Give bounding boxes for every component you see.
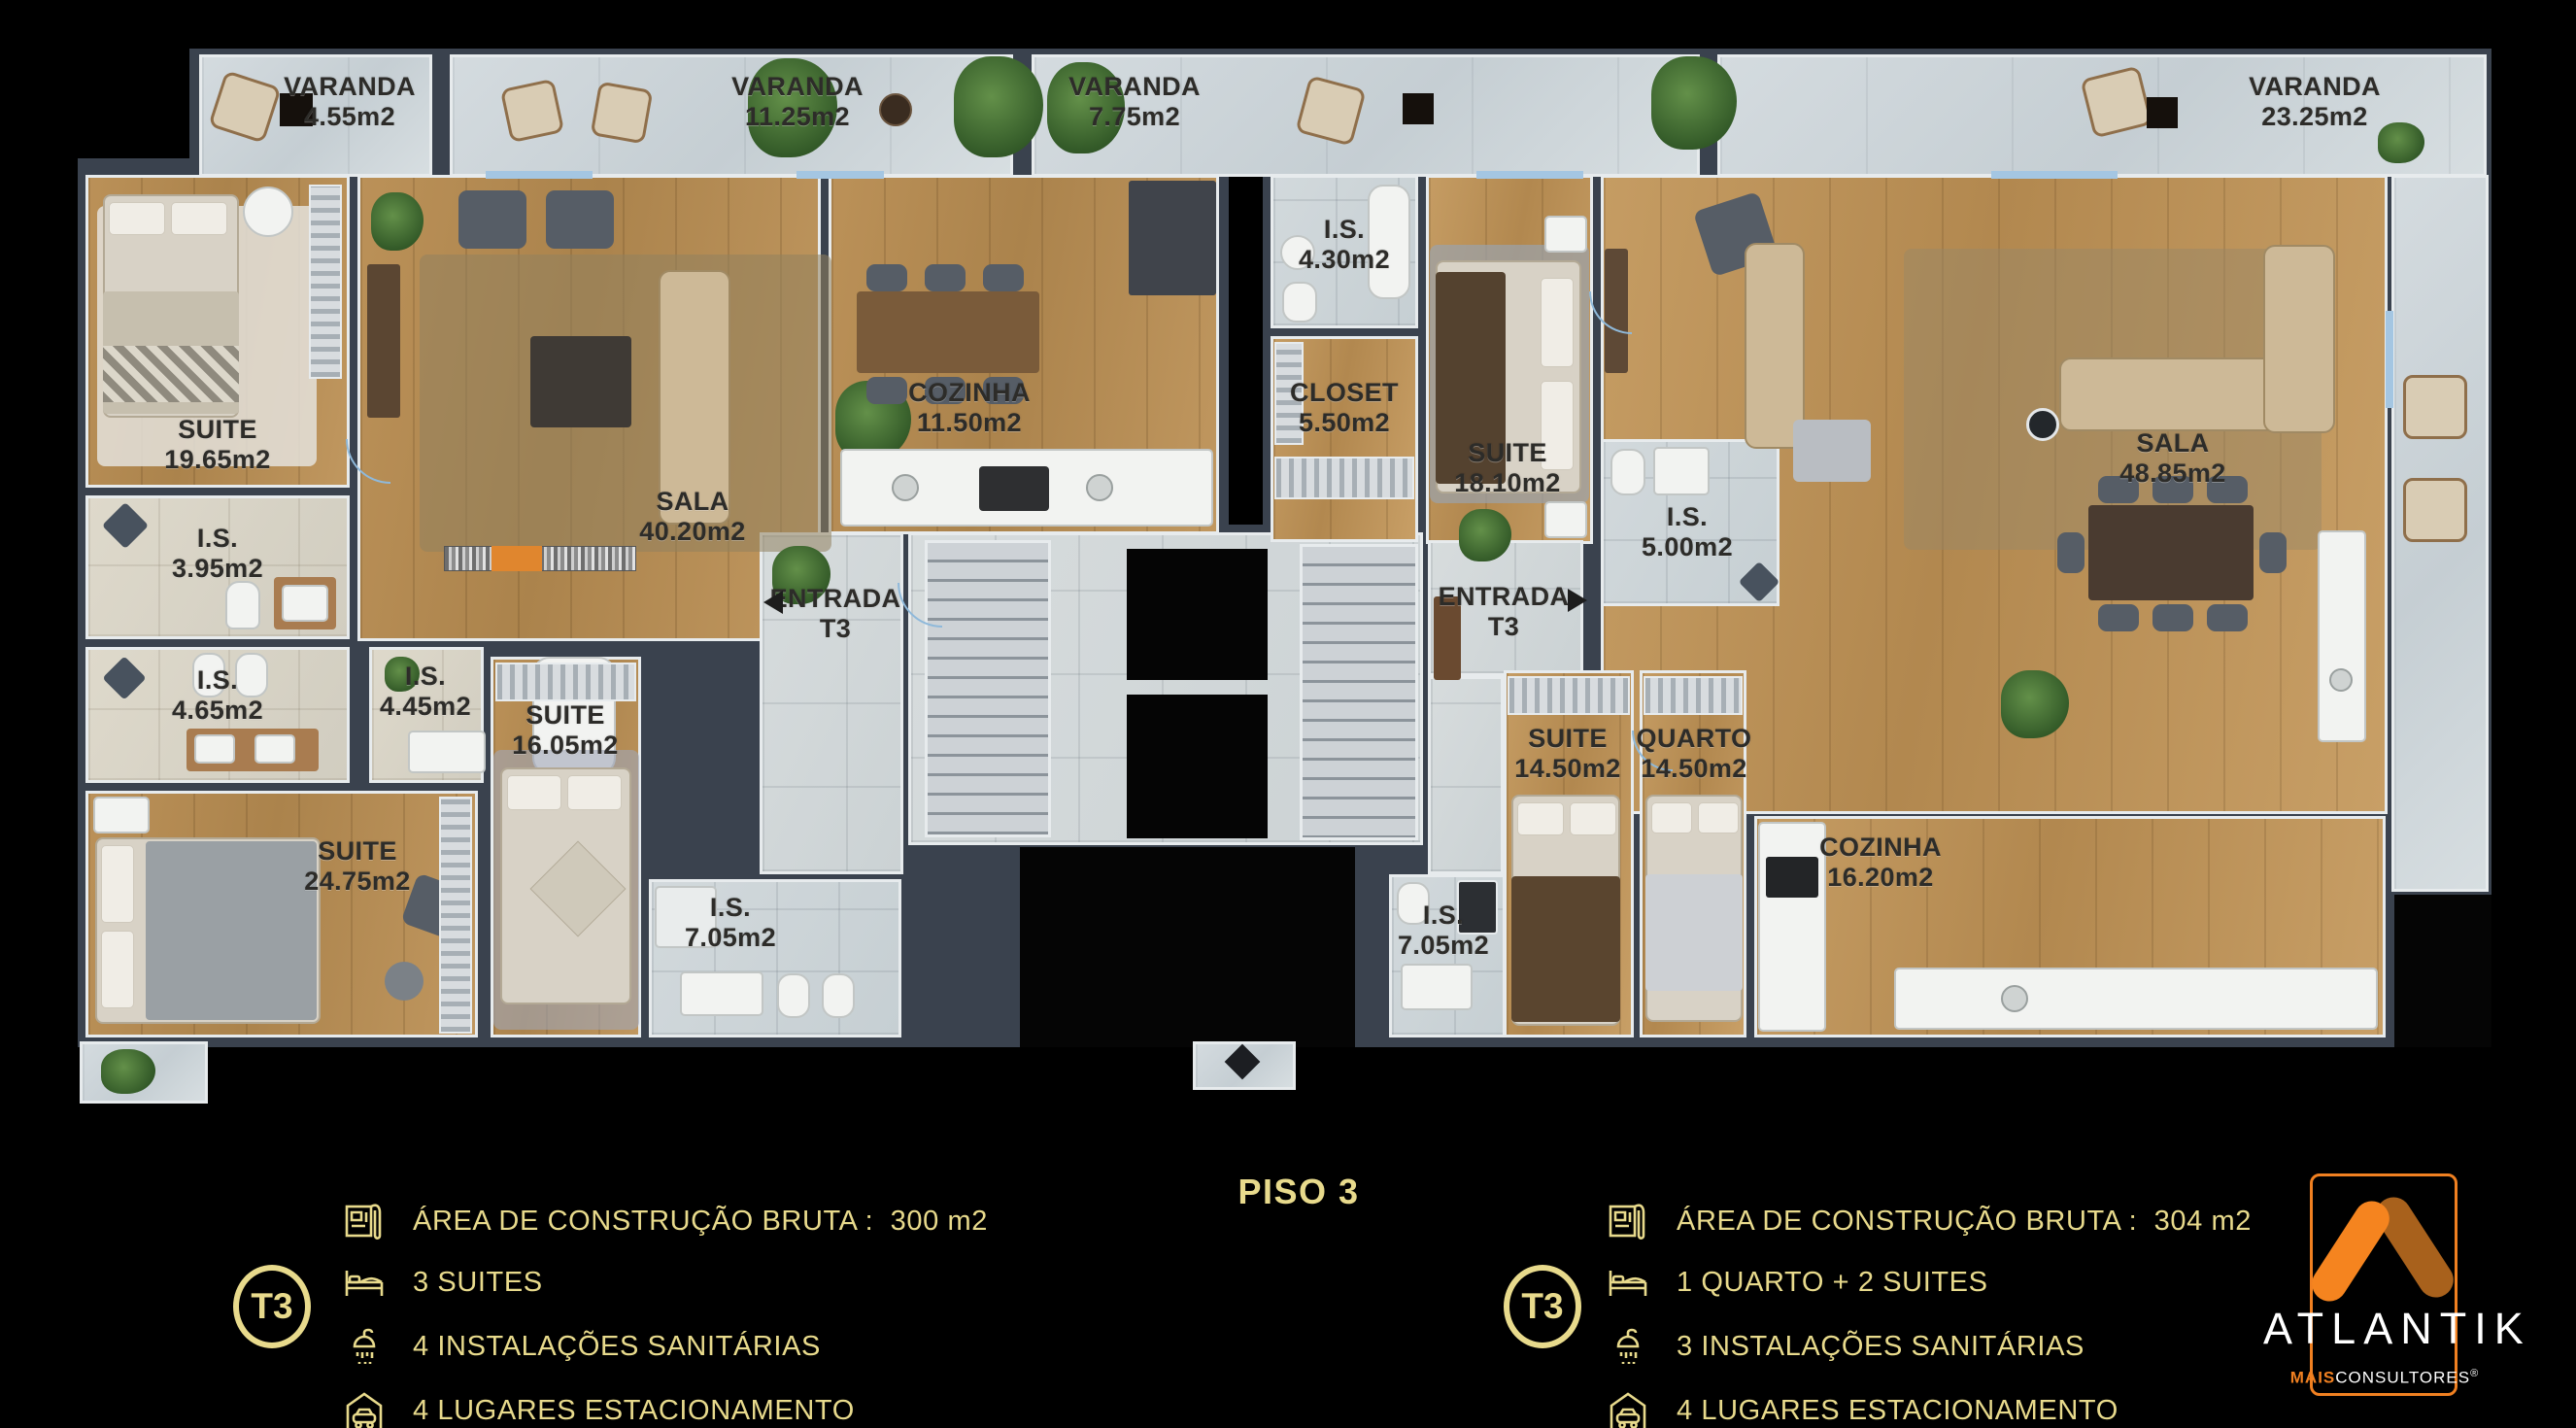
sink [194, 734, 235, 764]
room-name: SALA [2119, 428, 2225, 459]
room-label: ENTRADA T3 [770, 584, 901, 644]
lounge-chair [2403, 375, 2467, 439]
floorplan-page: VARANDA 4.55m2 VARANDA 11.25m2 VARANDA 7… [0, 0, 2576, 1428]
room-label: SUITE 19.65m2 [164, 415, 270, 475]
balcony-door [1991, 171, 2118, 179]
stairs-left [925, 540, 1051, 837]
balcony-label: VARANDA 11.25m2 [731, 72, 864, 132]
wardrobe [1508, 676, 1630, 715]
balcony-door [797, 171, 884, 179]
balcony-label: VARANDA 7.75m2 [1068, 72, 1201, 132]
lounge-chair [500, 79, 564, 143]
shower-icon [341, 1323, 388, 1370]
room-label: SUITE 18.10m2 [1454, 438, 1560, 498]
room-label: I.S. 4.30m2 [1299, 215, 1390, 275]
sofa-chaise [2263, 245, 2335, 433]
armchair [546, 190, 614, 249]
bed-icon [341, 1259, 388, 1306]
floor-title: PISO 3 [1237, 1172, 1359, 1212]
bed-pillow [567, 775, 622, 810]
sink [282, 585, 328, 622]
room-name: SUITE [1454, 438, 1560, 468]
elevator-shaft [1127, 549, 1268, 680]
room-area: 4.65m2 [172, 696, 263, 726]
shower-icon [1605, 1323, 1651, 1370]
car-garage-icon [341, 1387, 388, 1428]
bed-pillow [1698, 802, 1739, 833]
room-area: 7.05m2 [685, 923, 776, 953]
oven [1766, 857, 1818, 898]
room-area: 14.50m2 [1514, 754, 1620, 784]
entrada-arrow-icon [1568, 589, 1587, 612]
legend-bathrooms-text: 4 INSTALAÇÕES SANITÁRIAS [413, 1331, 821, 1363]
room-label: I.S. 4.45m2 [380, 662, 471, 722]
legend-parking-text: 4 LUGARES ESTACIONAMENTO [413, 1395, 855, 1427]
room-area: 16.05m2 [512, 731, 618, 761]
planter-box [1403, 93, 1434, 124]
bed-pillow [507, 775, 561, 810]
lounge-chair [591, 82, 654, 145]
room-name: SUITE [164, 415, 270, 445]
balcony-label: VARANDA 4.55m2 [284, 72, 416, 132]
bed-pillow [109, 202, 165, 235]
room-name: I.S. [172, 524, 263, 554]
kitchen-sink [892, 474, 919, 501]
kitchen-peninsula [2318, 530, 2366, 742]
bed-pillow [101, 931, 134, 1008]
stairs-right [1300, 544, 1418, 840]
legend-bedrooms-text: 3 SUITES [413, 1267, 543, 1299]
kitchen-sink [2329, 668, 2353, 692]
room-area: 24.75m2 [304, 867, 410, 897]
unit-badge-left: T3 [233, 1265, 311, 1348]
wardrobe [439, 797, 472, 1034]
dining-chair [925, 264, 966, 291]
bed-blanket [1645, 874, 1743, 991]
blueprint-icon [1605, 1198, 1651, 1244]
room-area: 5.00m2 [1642, 532, 1733, 562]
room-name: VARANDA [2249, 72, 2381, 102]
legend-row-parking-left: 4 LUGARES ESTACIONAMENTO [341, 1387, 855, 1428]
bidet [822, 973, 855, 1018]
legend-row-bedrooms-right: 1 QUARTO + 2 SUITES [1605, 1259, 1988, 1306]
bed-throw [103, 346, 239, 402]
room-label: CLOSET 5.50m2 [1290, 378, 1399, 438]
wardrobe [1274, 457, 1414, 499]
room-name: COZINHA [1819, 833, 1942, 863]
room-name: I.S. [172, 665, 263, 696]
coffee-table [530, 336, 631, 427]
building-gap-void [1020, 847, 1355, 1047]
room-area: 14.50m2 [1637, 754, 1752, 784]
registered-mark: ® [2470, 1368, 2479, 1379]
room-name: ENTRADA [1439, 582, 1570, 612]
void-corner [2394, 895, 2491, 1047]
room-label: SALA 48.85m2 [2119, 428, 2225, 489]
lounge-chair [2403, 478, 2467, 542]
room-name: I.S. [1299, 215, 1390, 245]
nightstand [1544, 501, 1587, 538]
legend-area-text: ÁREA DE CONSTRUÇÃO BRUTA : 304 m2 [1677, 1206, 2252, 1238]
tagline-bold: MAIS [2290, 1369, 2336, 1387]
room-label: SALA 40.20m2 [639, 487, 745, 547]
room-area: 48.85m2 [2119, 459, 2225, 489]
bed-pillow [1541, 278, 1574, 367]
bed-pillow [101, 845, 134, 923]
legend-row-bedrooms-left: 3 SUITES [341, 1259, 543, 1306]
tv-console [367, 264, 400, 418]
legend-bathrooms-text: 3 INSTALAÇÕES SANITÁRIAS [1677, 1331, 2085, 1363]
unit-type: T3 [251, 1286, 292, 1327]
car-garage-icon [1605, 1387, 1651, 1428]
room-area: 40.20m2 [639, 517, 745, 547]
pouf [385, 962, 424, 1001]
room-area: 23.25m2 [2249, 102, 2381, 132]
room-label: COZINHA 16.20m2 [1819, 833, 1942, 893]
room-name: QUARTO [1637, 724, 1752, 754]
room-area: 4.55m2 [284, 102, 416, 132]
room-label: SUITE 24.75m2 [304, 836, 410, 897]
room-area: 16.20m2 [1819, 863, 1942, 893]
unit-badge-right: T3 [1504, 1265, 1581, 1348]
dining-table [857, 291, 1039, 373]
room-name: I.S. [1398, 901, 1489, 931]
dining-chair [866, 377, 907, 404]
armchair [458, 190, 526, 249]
room-area: 11.50m2 [908, 408, 1031, 438]
room-area: 3.95m2 [172, 554, 263, 584]
balcony-table [879, 93, 912, 126]
dining-chair [2098, 604, 2139, 631]
room-label: I.S. 4.65m2 [172, 665, 263, 726]
room-name: I.S. [685, 893, 776, 923]
room-label: I.S. 7.05m2 [685, 893, 776, 953]
room-name: ENTRADA [770, 584, 901, 614]
room-name: VARANDA [284, 72, 416, 102]
vanity [1401, 964, 1473, 1010]
kitchen-sink [2001, 985, 2028, 1012]
room-label: SUITE 16.05m2 [512, 700, 618, 761]
room-area: 7.05m2 [1398, 931, 1489, 961]
legend-bedrooms-text: 1 QUARTO + 2 SUITES [1677, 1267, 1988, 1299]
cooktop [979, 466, 1049, 511]
vanity [408, 731, 486, 773]
blueprint-icon [341, 1198, 388, 1244]
kitchen-cabinet [1129, 181, 1216, 295]
legend-area-label: ÁREA DE CONSTRUÇÃO BRUTA : [1677, 1206, 2137, 1237]
wardrobe [309, 185, 342, 379]
room-area: 7.75m2 [1068, 102, 1201, 132]
side-table [2026, 408, 2059, 441]
room-area: 11.25m2 [731, 102, 864, 132]
room-name: I.S. [380, 662, 471, 692]
dining-chair [2259, 532, 2287, 573]
atlantik-tagline: MAISCONSULTORES® [2263, 1368, 2506, 1388]
room-label: ENTRADA T3 [1439, 582, 1570, 642]
atlantik-brand-text: ATLANTIK [2263, 1304, 2506, 1354]
room-label: COZINHA 11.50m2 [908, 378, 1031, 438]
legend-parking-text: 4 LUGARES ESTACIONAMENTO [1677, 1395, 2118, 1427]
wardrobe [495, 663, 636, 701]
dining-chair [2152, 604, 2193, 631]
ottoman [1793, 420, 1871, 482]
room-name: CLOSET [1290, 378, 1399, 408]
toilet [777, 973, 810, 1018]
bed-icon [1605, 1259, 1651, 1306]
dining-chair [866, 264, 907, 291]
kitchen-counter [1894, 968, 2378, 1030]
room-area: T3 [770, 614, 901, 644]
kitchen-appliance-column [1758, 822, 1826, 1032]
room-name: SUITE [1514, 724, 1620, 754]
room-area: T3 [1439, 612, 1570, 642]
bed-pillow [171, 202, 227, 235]
legend-area-value: 300 m2 [891, 1206, 988, 1237]
room-name: SUITE [512, 700, 618, 731]
legend-row-area-left: ÁREA DE CONSTRUÇÃO BRUTA : 300 m2 [341, 1198, 988, 1244]
room-label: I.S. 3.95m2 [172, 524, 263, 584]
dining-chair [2057, 532, 2085, 573]
entrada-arrow-icon [763, 591, 783, 614]
room-name: SUITE [304, 836, 410, 867]
legend-row-area-right: ÁREA DE CONSTRUÇÃO BRUTA : 304 m2 [1605, 1198, 2252, 1244]
room-area: 4.30m2 [1299, 245, 1390, 275]
unit-type: T3 [1521, 1286, 1563, 1327]
room-area: 18.10m2 [1454, 468, 1560, 498]
kitchen-sink [1086, 474, 1113, 501]
ottoman [243, 187, 293, 237]
room-entrada-right-corridor [1428, 676, 1504, 874]
legend-row-bathrooms-left: 4 INSTALAÇÕES SANITÁRIAS [341, 1323, 821, 1370]
sofa [1745, 243, 1805, 449]
room-name: COZINHA [908, 378, 1031, 408]
tagline-rest: CONSULTORES [2335, 1369, 2470, 1387]
bed-pillow [1570, 802, 1616, 835]
dining-chair [2207, 604, 2248, 631]
bed-blanket [1511, 876, 1620, 1022]
bed-pillow [1651, 802, 1692, 833]
toilet [225, 581, 260, 629]
balcony-label: VARANDA 23.25m2 [2249, 72, 2381, 132]
balcony-door [2386, 311, 2393, 408]
legend-area-text: ÁREA DE CONSTRUÇÃO BRUTA : 300 m2 [413, 1206, 988, 1238]
legend-area-label: ÁREA DE CONSTRUÇÃO BRUTA : [413, 1206, 873, 1237]
sink [254, 734, 295, 764]
elevator-shaft-2 [1127, 695, 1268, 838]
room-area: 4.45m2 [380, 692, 471, 722]
room-name: VARANDA [1068, 72, 1201, 102]
balcony-door [486, 171, 593, 179]
bed-pillow [1517, 802, 1564, 835]
legend-row-parking-right: 4 LUGARES ESTACIONAMENTO [1605, 1387, 2118, 1428]
legend-area-value: 304 m2 [2154, 1206, 2252, 1237]
room-area: 5.50m2 [1290, 408, 1399, 438]
legend-row-bathrooms-right: 3 INSTALAÇÕES SANITÁRIAS [1605, 1323, 2085, 1370]
room-name: I.S. [1642, 502, 1733, 532]
bookshelf-accent [491, 546, 542, 571]
wardrobe [1644, 676, 1743, 715]
dining-chair [983, 264, 1024, 291]
room-label: QUARTO 14.50m2 [1637, 724, 1752, 784]
planter-box [2147, 97, 2178, 128]
room-label: I.S. 7.05m2 [1398, 901, 1489, 961]
nightstand [93, 797, 150, 833]
room-name: SALA [639, 487, 745, 517]
room-name: VARANDA [731, 72, 864, 102]
toilet [1282, 282, 1317, 323]
vanity [1653, 447, 1710, 495]
vanity [680, 971, 763, 1016]
balcony-door [1476, 171, 1583, 179]
room-label: I.S. 5.00m2 [1642, 502, 1733, 562]
dining-table [2088, 505, 2254, 600]
bed-blanket [146, 841, 317, 1020]
nightstand [1544, 216, 1587, 253]
room-label: SUITE 14.50m2 [1514, 724, 1620, 784]
room-area: 19.65m2 [164, 445, 270, 475]
toilet [1610, 449, 1645, 495]
